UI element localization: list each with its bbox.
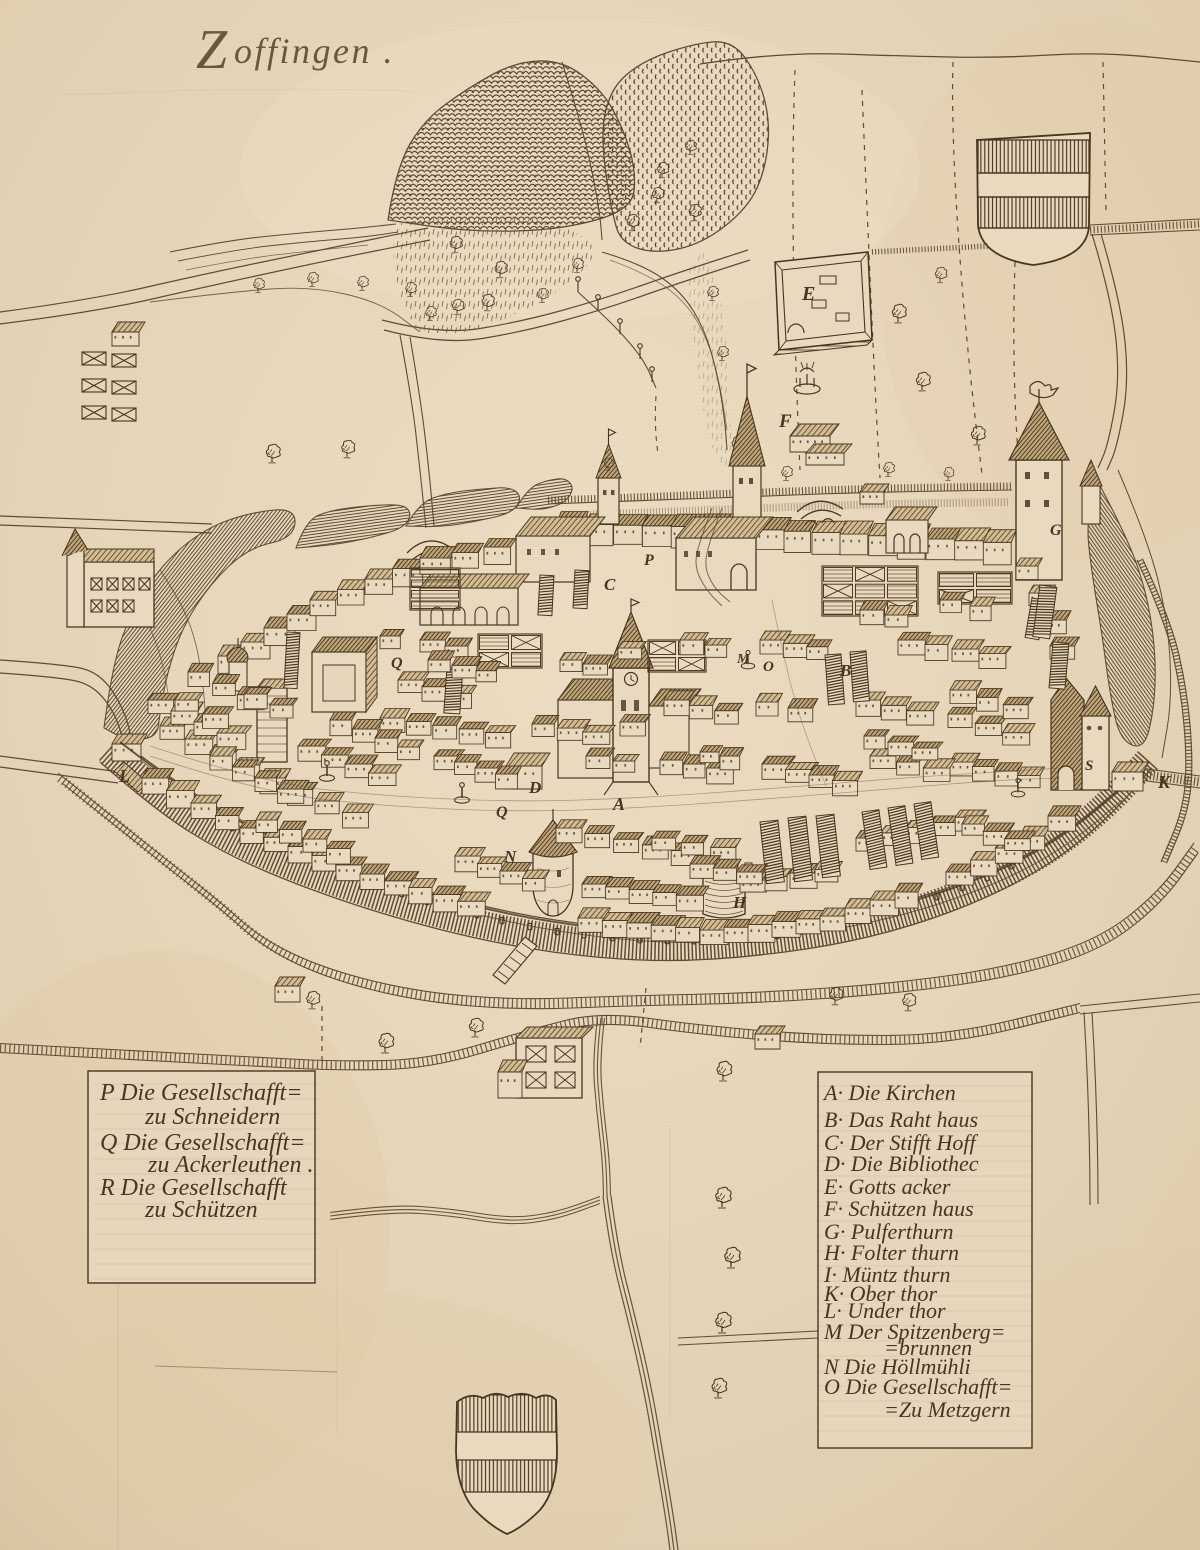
svg-text:C: C — [604, 575, 616, 594]
svg-text:Q: Q — [496, 804, 508, 821]
svg-text:H: H — [732, 893, 747, 912]
svg-text:O Die Gesellschafft=: O Die Gesellschafft= — [824, 1374, 1012, 1399]
svg-text:offingen .: offingen . — [234, 31, 395, 71]
svg-text:P Die Gesellschafft=: P Die Gesellschafft= — [99, 1080, 302, 1106]
svg-text:A· Die Kirchen: A· Die Kirchen — [822, 1080, 956, 1105]
svg-text:B· Das Raht haus: B· Das Raht haus — [824, 1107, 978, 1132]
svg-text:=Zu Metzgern: =Zu Metzgern — [884, 1397, 1011, 1422]
svg-text:D: D — [528, 778, 541, 797]
svg-text:F· Schützen haus: F· Schützen haus — [823, 1196, 974, 1221]
svg-text:zu Schneidern: zu Schneidern — [144, 1104, 280, 1130]
svg-text:Q: Q — [391, 655, 403, 672]
svg-text:Z: Z — [196, 19, 228, 81]
svg-text:K: K — [1157, 772, 1172, 792]
svg-text:F: F — [778, 411, 792, 432]
svg-text:D· Die Bibliothec: D· Die Bibliothec — [823, 1151, 979, 1176]
svg-text:O: O — [763, 659, 774, 675]
svg-text:A: A — [612, 794, 625, 814]
svg-text:G: G — [1050, 522, 1062, 539]
svg-text:E: E — [801, 283, 815, 305]
svg-text:L: L — [118, 766, 130, 786]
svg-text:P: P — [643, 552, 654, 569]
svg-text:S: S — [1085, 758, 1093, 774]
svg-text:M: M — [736, 652, 750, 667]
svg-text:zu Schützen: zu Schützen — [144, 1197, 258, 1223]
svg-text:B: B — [839, 661, 851, 680]
